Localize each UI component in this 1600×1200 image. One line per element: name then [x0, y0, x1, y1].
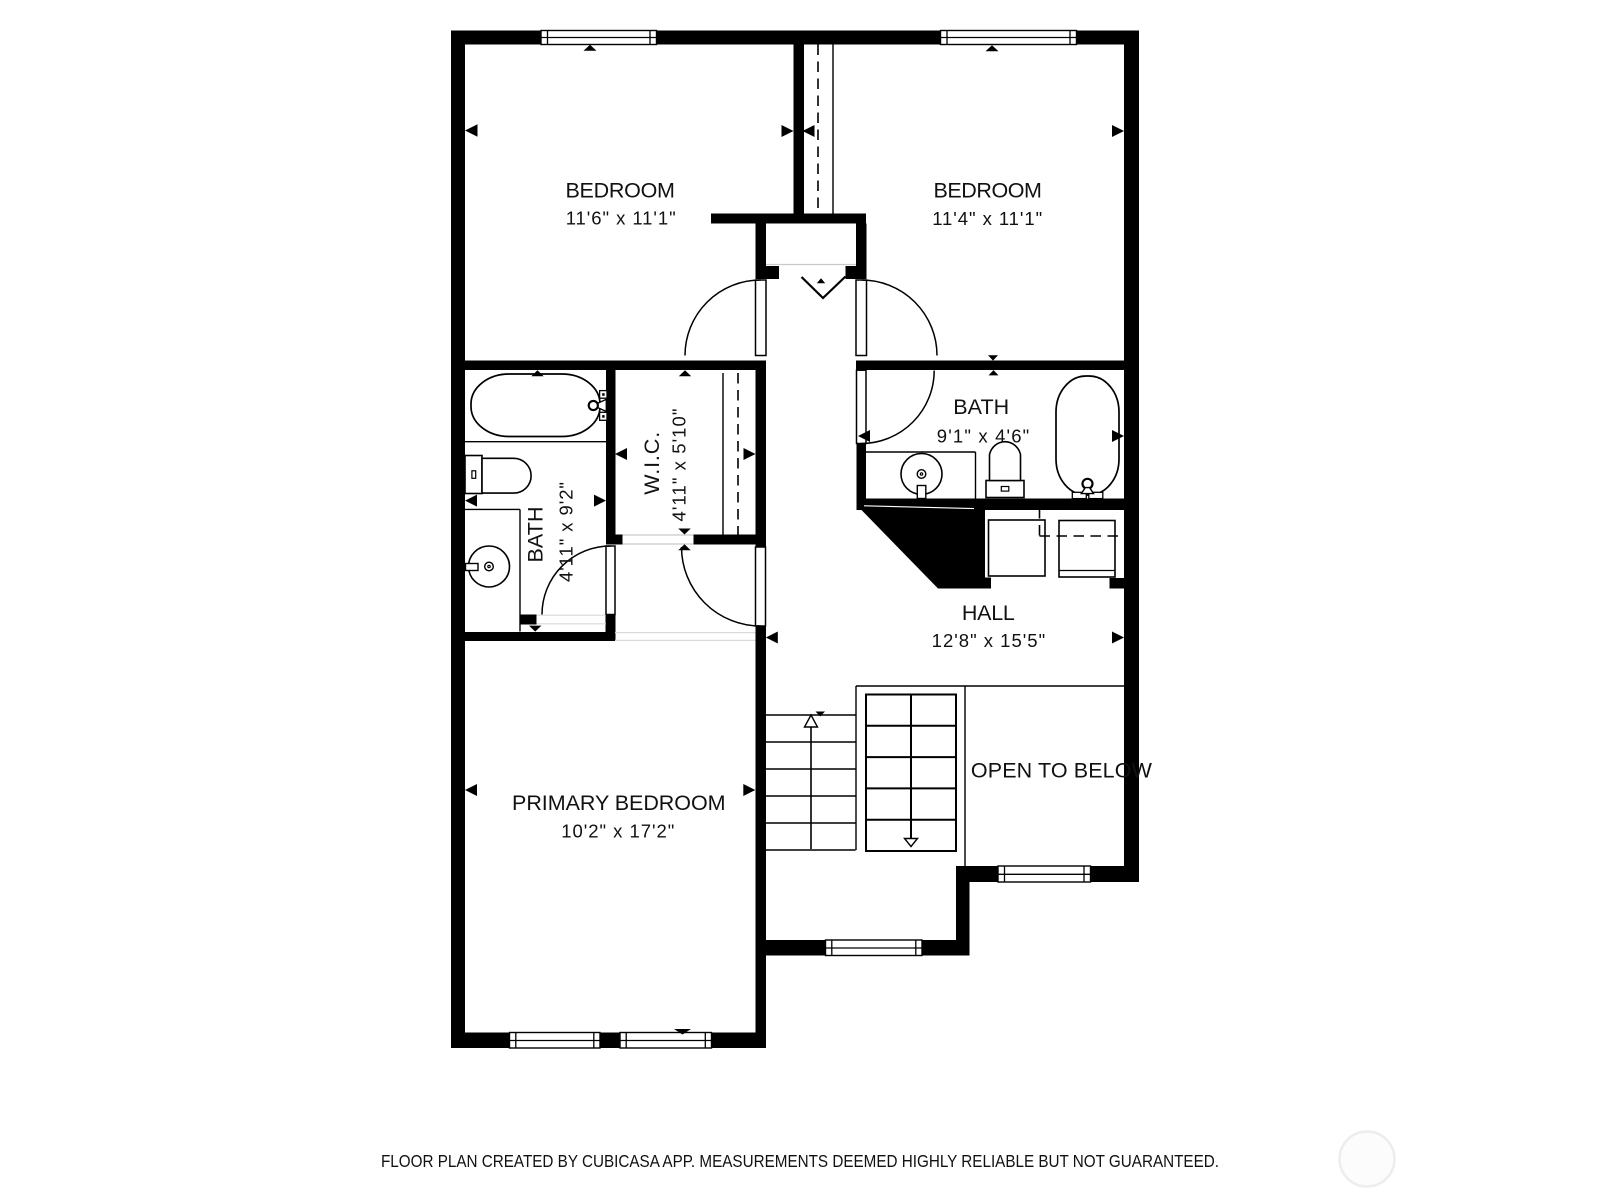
svg-text:9'1" x 4'6": 9'1" x 4'6" — [937, 426, 1030, 447]
svg-text:4'11" x 9'2": 4'11" x 9'2" — [556, 482, 577, 582]
svg-text:10'2" x 17'2": 10'2" x 17'2" — [561, 821, 674, 842]
svg-text:12'8" x 15'5": 12'8" x 15'5" — [932, 630, 1046, 651]
svg-text:BEDROOM: BEDROOM — [933, 179, 1041, 203]
svg-text:FLOOR PLAN CREATED BY CUBICASA: FLOOR PLAN CREATED BY CUBICASA APP. MEAS… — [381, 1151, 1219, 1171]
svg-text:11'6" x 11'1": 11'6" x 11'1" — [566, 208, 676, 229]
svg-text:BEDROOM: BEDROOM — [565, 179, 675, 203]
svg-text:4'11" x 5'10": 4'11" x 5'10" — [669, 409, 690, 522]
svg-text:BATH: BATH — [953, 395, 1009, 419]
svg-text:W.I.C.: W.I.C. — [640, 432, 664, 495]
svg-text:PRIMARY BEDROOM: PRIMARY BEDROOM — [512, 791, 726, 815]
svg-text:11'4" x 11'1": 11'4" x 11'1" — [932, 208, 1042, 229]
svg-text:OPEN TO BELOW: OPEN TO BELOW — [971, 759, 1153, 783]
svg-text:HALL: HALL — [962, 601, 1015, 625]
svg-text:BATH: BATH — [524, 507, 548, 563]
